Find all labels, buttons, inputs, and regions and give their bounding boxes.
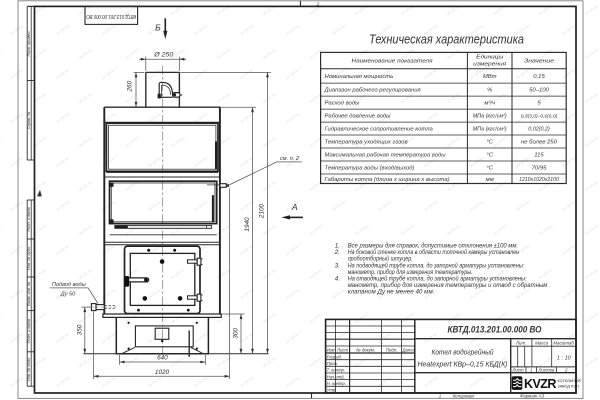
svg-text:Инв. № дубл.: Инв. № дубл.	[26, 246, 31, 270]
svg-text:2.: 2.	[334, 249, 340, 256]
svg-text:Максимальная рабочая температу: Максимальная рабочая температура воды	[325, 153, 447, 159]
svg-text:KVZR: KVZR	[524, 377, 556, 391]
svg-text:1020: 1020	[155, 369, 170, 376]
svg-text:Расход воды: Расход воды	[325, 101, 361, 107]
svg-text:4.: 4.	[335, 276, 340, 283]
svg-text:Листов: Листов	[537, 368, 555, 373]
svg-text:Т. контр.: Т. контр.	[327, 368, 346, 373]
svg-text:50–100: 50–100	[529, 88, 549, 94]
svg-text:2: 2	[316, 2, 320, 7]
svg-text:А: А	[291, 202, 298, 212]
svg-text:Справ. №: Справ. №	[26, 111, 31, 129]
svg-text:Диапазон рабочего регулировани: Диапазон рабочего регулирования	[324, 88, 422, 94]
svg-text:300: 300	[232, 328, 239, 339]
svg-text:Наименование показателя: Наименование показателя	[352, 59, 434, 65]
svg-text:Дата: Дата	[402, 348, 415, 353]
svg-text:Б: Б	[155, 23, 161, 33]
svg-text:115: 115	[534, 153, 544, 159]
svg-text:Гидравлическое сопротивление к: Гидравлическое сопротивление котла	[325, 127, 434, 133]
svg-text:Инв. № подл.: Инв. № подл.	[26, 357, 31, 381]
svg-text:Копировал: Копировал	[453, 394, 475, 399]
svg-text:измерения: измерения	[473, 62, 507, 68]
svg-text:°С: °С	[486, 140, 493, 146]
svg-text:КВТД.013.201.00.000 ВО: КВТД.013.201.00.000 ВО	[86, 13, 136, 19]
svg-text:м³/ч: м³/ч	[484, 101, 495, 107]
svg-text:70/95: 70/95	[532, 166, 547, 172]
svg-text:0,15: 0,15	[533, 74, 545, 80]
svg-text:%: %	[487, 88, 492, 94]
svg-text:Heatexpert КВр–0,15 КБД(К): Heatexpert КВр–0,15 КБД(К)	[418, 362, 508, 369]
svg-text:КОТЕЛЬНЫЙ: КОТЕЛЬНЫЙ	[558, 379, 581, 383]
svg-text:Изм: Изм	[327, 348, 335, 353]
svg-text:МПа (кгс/см²): МПа (кгс/см²)	[473, 114, 507, 120]
svg-text:Лист: Лист	[336, 348, 348, 353]
svg-text:мм: мм	[486, 177, 494, 183]
svg-text:Котел водогрейный: Котел водогрейный	[432, 349, 494, 357]
svg-text:Н. контр.: Н. контр.	[327, 381, 346, 386]
svg-text:Разраб.: Разраб.	[327, 354, 343, 359]
svg-text:Номинальная мощность: Номинальная мощность	[325, 74, 394, 80]
svg-text:0,02(0,2): 0,02(0,2)	[528, 127, 550, 133]
svg-text:Подвод воды: Подвод воды	[52, 282, 86, 288]
svg-text:Подп. и дата: Подп. и дата	[26, 318, 31, 343]
svg-text:Масса: Масса	[535, 340, 549, 345]
svg-text:Ø 250: Ø 250	[153, 52, 174, 59]
svg-text:Взам. инв. №: Взам. инв. №	[26, 281, 31, 306]
svg-text:МВт: МВт	[483, 74, 497, 80]
svg-text:°С: °С	[486, 153, 493, 159]
svg-text:см. п. 2: см. п. 2	[280, 156, 300, 162]
svg-text:Формат А3: Формат А3	[520, 394, 545, 399]
svg-text:Пров.: Пров.	[327, 361, 338, 366]
svg-text:640: 640	[157, 355, 168, 362]
svg-text:Утв.: Утв.	[327, 388, 337, 393]
svg-text:Температура воды (вход/выход): Температура воды (вход/выход)	[325, 166, 415, 172]
svg-text:0,3(3,0)–0,6(6,0): 0,3(3,0)–0,6(6,0)	[521, 114, 558, 120]
svg-text:Масштаб: Масштаб	[553, 340, 574, 345]
svg-text:1 : 10: 1 : 10	[557, 355, 572, 361]
svg-text:Единицы: Единицы	[476, 55, 504, 61]
svg-text:ЗАВОД РЭП: ЗАВОД РЭП	[558, 384, 579, 388]
svg-text:2100: 2100	[259, 203, 266, 219]
svg-text:клапаном Ду не менее 40 мм.: клапаном Ду не менее 40 мм.	[348, 289, 435, 296]
svg-text:Лист: Лист	[511, 368, 524, 373]
svg-text:Рабочее давление воды: Рабочее давление воды	[325, 114, 392, 120]
svg-text:Техническая характеристика: Техническая характеристика	[369, 33, 524, 47]
svg-text:Нач.отд.: Нач.отд.	[327, 374, 345, 379]
svg-text:не более 250: не более 250	[521, 140, 558, 146]
svg-text:КВТД.013.201.00.000 ВО: КВТД.013.201.00.000 ВО	[448, 325, 542, 335]
svg-text:Температура уходящих газов: Температура уходящих газов	[325, 140, 408, 146]
svg-text:Значение: Значение	[524, 59, 555, 65]
svg-text:Подп.: Подп.	[386, 348, 397, 353]
svg-text:°С: °С	[486, 166, 493, 172]
svg-text:Габариты котла (длина х ширина: Габариты котла (длина х ширина х высота)	[325, 177, 450, 183]
svg-text:Подп. и дата: Подп. и дата	[26, 206, 31, 231]
svg-text:Ду 50: Ду 50	[60, 291, 76, 297]
svg-text:1940: 1940	[244, 217, 251, 232]
svg-text:350: 350	[77, 324, 84, 335]
svg-text:1210х1020х2100: 1210х1020х2100	[519, 177, 559, 183]
svg-text:2: 2	[564, 368, 568, 373]
svg-text:№ докум.: № докум.	[356, 348, 375, 353]
svg-text:Лит.: Лит.	[515, 340, 526, 345]
svg-text:МПа (кгс/см²): МПа (кгс/см²)	[473, 127, 507, 133]
svg-text:260: 260	[127, 80, 134, 92]
svg-text:3.: 3.	[335, 262, 340, 269]
svg-text:Перв. примен.: Перв. примен.	[26, 31, 31, 57]
